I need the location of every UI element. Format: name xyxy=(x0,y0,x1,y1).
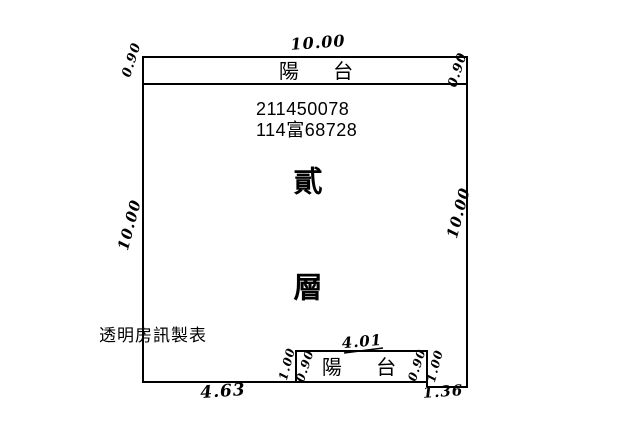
floor-plan-canvas: 10.00 0.90 0.90 陽 台 211450078 114富68728 … xyxy=(0,0,640,442)
dim-bottom-right-width: 1.36 xyxy=(422,383,463,401)
registration-number-2: 114富68728 xyxy=(256,121,357,139)
dim-bottom-left-width: 4.63 xyxy=(200,382,246,402)
floor-label-lower-char: 層 xyxy=(293,274,322,303)
top-balcony-label: 陽 台 xyxy=(279,61,355,81)
dim-bottom-balcony-width: 4.01 xyxy=(341,333,383,351)
maker-watermark: 透明房訊製表 xyxy=(99,328,207,345)
registration-number-1: 211450078 xyxy=(256,100,349,118)
bottom-balcony-label: 陽 台 xyxy=(322,357,398,377)
floor-label-upper-char: 貳 xyxy=(293,168,322,197)
dim-top-width: 10.00 xyxy=(290,33,346,53)
